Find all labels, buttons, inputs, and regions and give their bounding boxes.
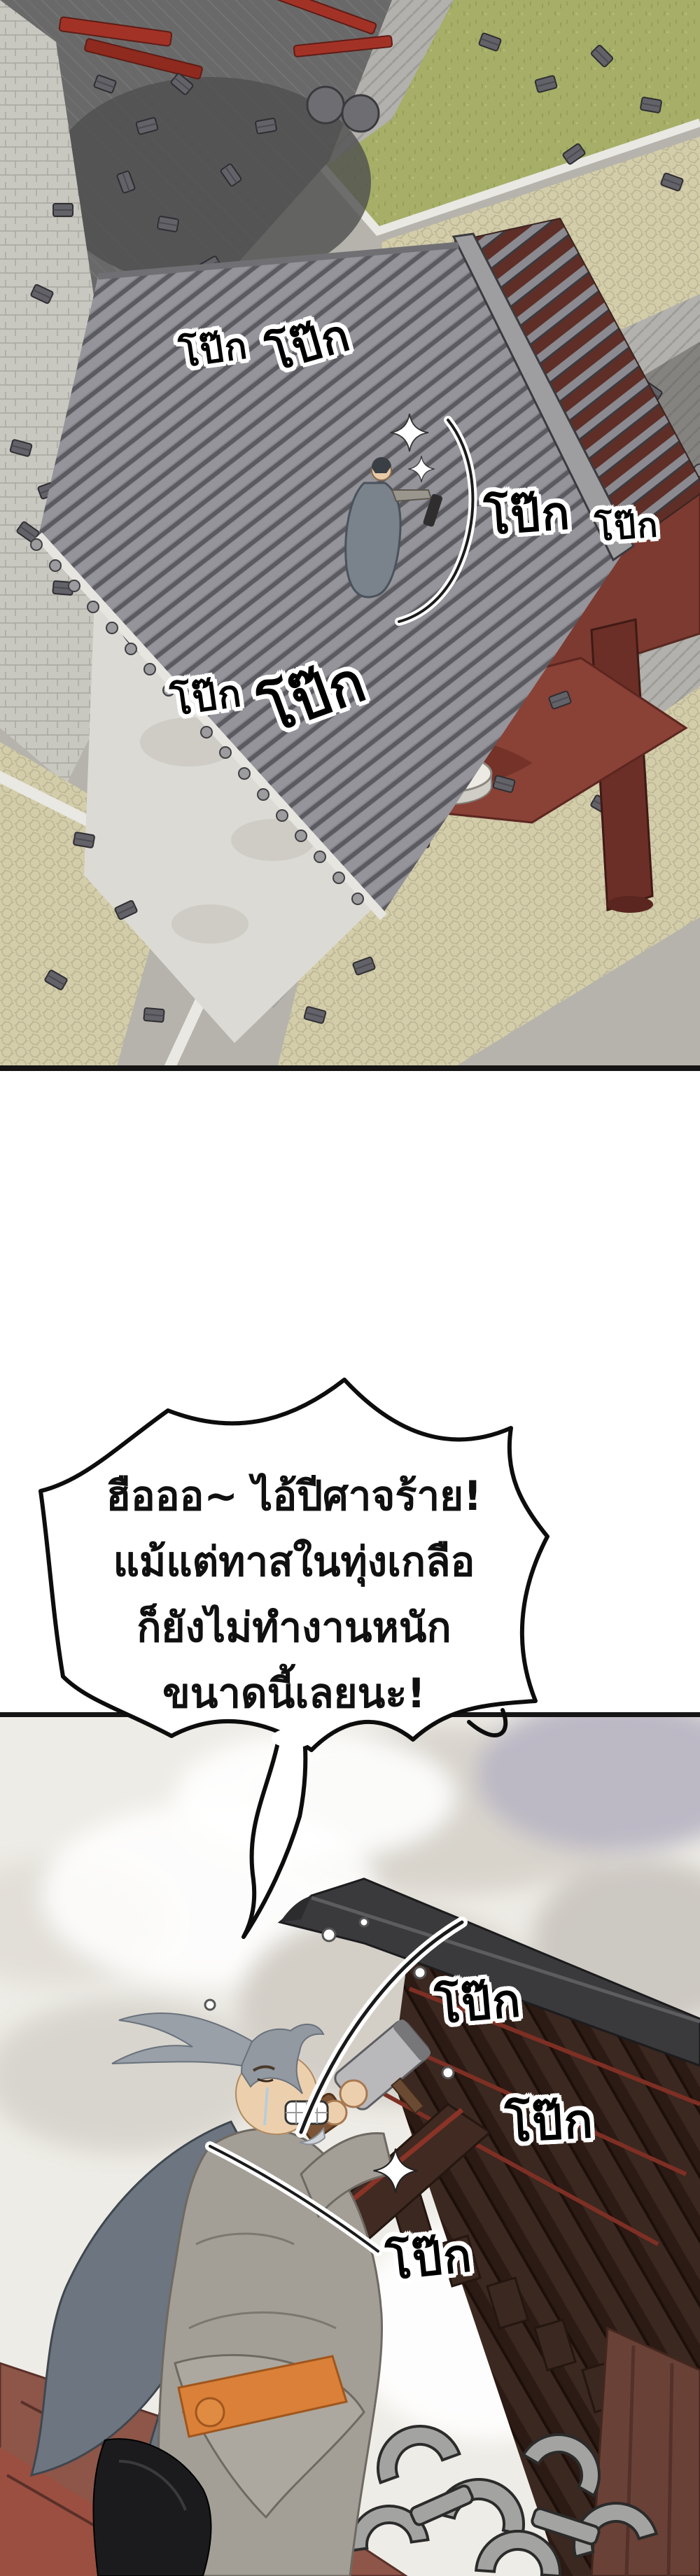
bubble-line-4: ขนาดนี้เลยนะ! — [56, 1660, 532, 1726]
sfx-knock-bottom-1: โป๊ก — [433, 1977, 524, 2031]
sfx-word: โป๊ก — [483, 486, 573, 545]
sfx-word: โป๊ก — [168, 671, 245, 724]
panel-top-bottom-border — [0, 1065, 700, 1071]
webtoon-page: โป๊ก โป๊ก โป๊ก โป๊ก โป๊ก โป๊ก — [0, 0, 700, 2576]
bubble-line-2: แม้แต่ทาสในทุ่งเกลือ — [56, 1529, 532, 1595]
sfx-word: โป๊ก — [594, 508, 659, 546]
sfx-word: โป๊ก — [384, 2228, 475, 2290]
sfx-word: โป๊ก — [504, 2094, 596, 2154]
sfx-knock-bottom-2: โป๊ก — [504, 2098, 595, 2150]
bubble-line-1: ฮือออ~ ไอ้ปีศาจร้าย! — [56, 1463, 532, 1529]
sfx-knock-top-2: โป๊ก โป๊ก — [483, 484, 654, 542]
bubble-line-3: ก็ยังไม่ทำงานหนัก — [56, 1595, 532, 1660]
sfx-knock-bottom-3: โป๊ก — [384, 2232, 475, 2288]
speech-bubble-text: ฮือออ~ ไอ้ปีศาจร้าย! แม้แต่ทาสในทุ่งเกลื… — [56, 1463, 532, 1726]
